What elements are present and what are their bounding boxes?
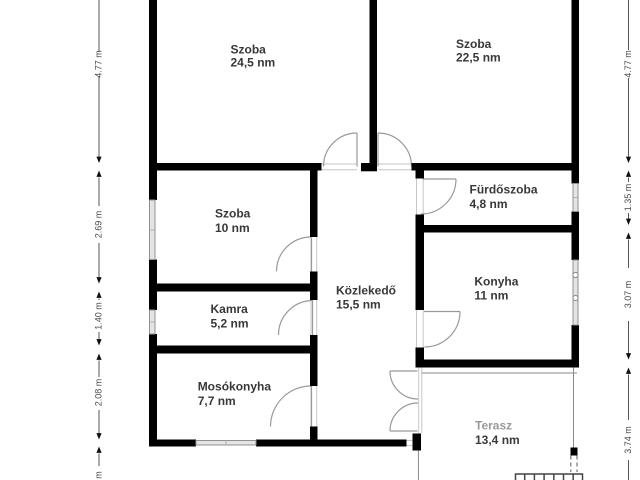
svg-text:10 nm: 10 nm [215,221,250,235]
svg-text:5,2 nm: 5,2 nm [211,317,249,331]
svg-text:1.35 m: 1.35 m [623,184,633,212]
svg-text:Mosókonyha: Mosókonyha [198,380,272,394]
svg-text:15,5 nm: 15,5 nm [336,298,381,312]
svg-text:22,5 nm: 22,5 nm [456,51,501,65]
svg-text:Szoba: Szoba [231,42,267,56]
svg-text:Terasz: Terasz [475,419,512,433]
svg-text:11 nm: 11 nm [474,288,508,302]
svg-text:24,5 nm: 24,5 nm [231,56,276,70]
svg-text:7,7 nm: 7,7 nm [198,394,236,408]
svg-text:2.69 m: 2.69 m [94,211,104,239]
svg-text:Konyha: Konyha [474,275,518,289]
svg-text:Fürdőszoba: Fürdőszoba [470,183,538,197]
svg-text:4.77 m: 4.77 m [94,50,104,78]
svg-text:2.08 m: 2.08 m [94,379,104,407]
svg-text:4,8 nm: 4,8 nm [470,197,508,211]
svg-text:Szoba: Szoba [215,206,251,220]
svg-text:m: m [94,471,104,479]
svg-text:Szoba: Szoba [456,37,492,51]
svg-text:13,4 nm: 13,4 nm [475,433,520,447]
svg-text:Közlekedő: Közlekedő [336,284,396,298]
svg-text:3.07 m: 3.07 m [623,281,633,309]
svg-text:3.74 m: 3.74 m [623,426,633,454]
svg-text:1.40 m: 1.40 m [94,302,104,330]
svg-text:4.77 m: 4.77 m [623,50,633,78]
svg-text:Kamra: Kamra [211,302,249,316]
